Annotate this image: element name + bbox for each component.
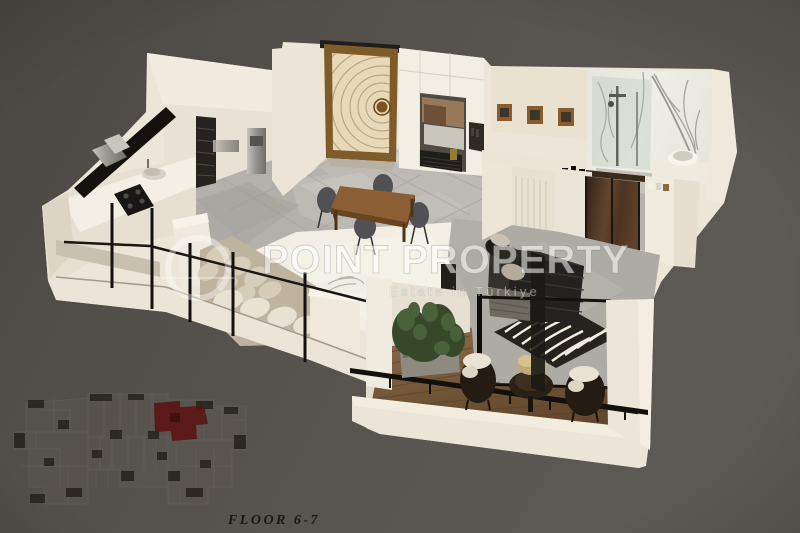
svg-text:FLOOR 6-7: FLOOR 6-7	[227, 513, 320, 528]
svg-text:POINT PROPERTY: POINT PROPERTY	[262, 238, 629, 282]
svg-text:Estate in Türkiye: Estate in Türkiye	[389, 284, 540, 299]
